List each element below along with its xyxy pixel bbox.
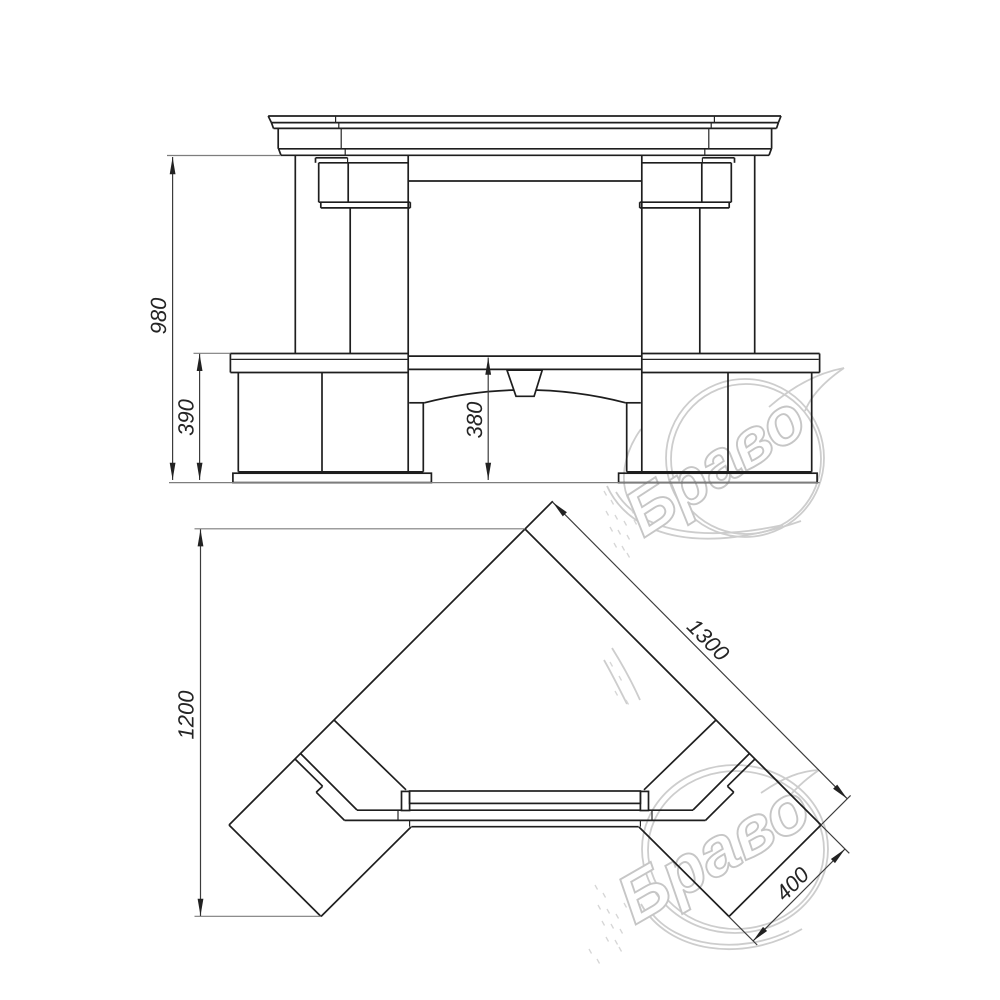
svg-text:980: 980 xyxy=(146,297,171,334)
svg-text:390: 390 xyxy=(173,398,198,435)
svg-text:1200: 1200 xyxy=(173,690,198,740)
svg-text:380: 380 xyxy=(462,401,487,438)
